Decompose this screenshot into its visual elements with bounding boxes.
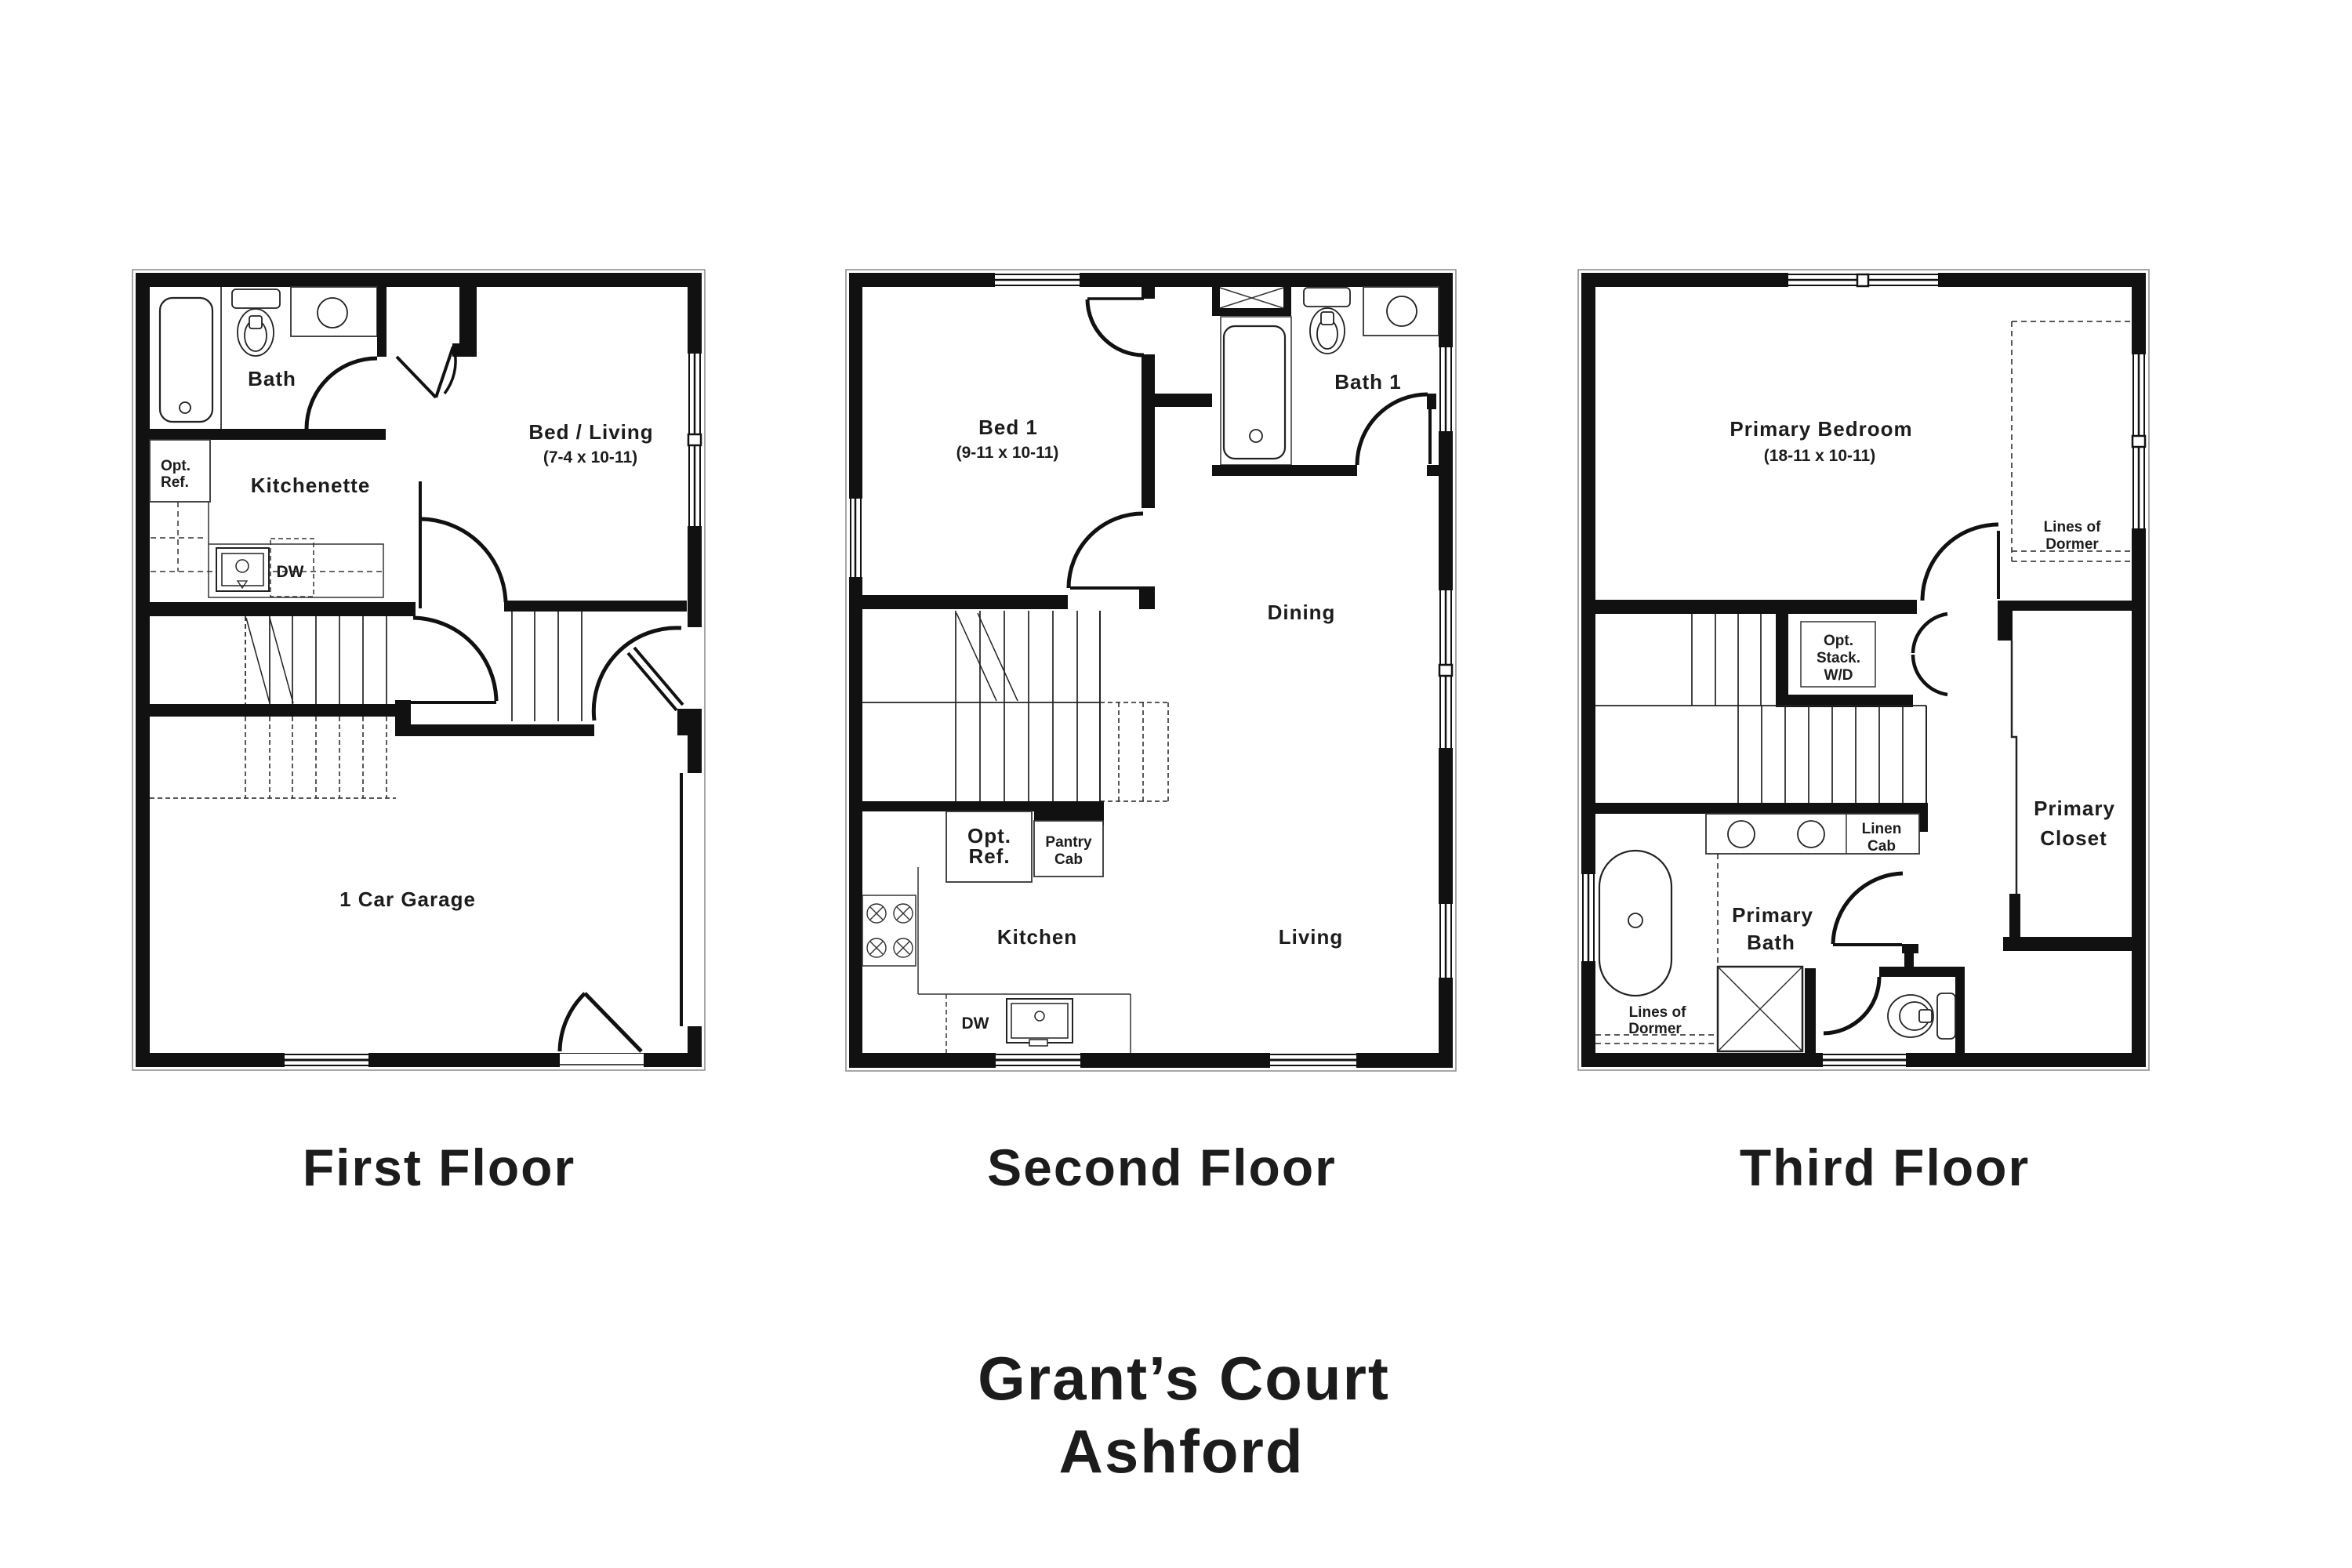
- svg-text:Ref.: Ref.: [161, 474, 189, 491]
- svg-text:W/D: W/D: [1824, 667, 1853, 684]
- svg-text:Primary: Primary: [2034, 797, 2115, 820]
- svg-text:Kitchenette: Kitchenette: [251, 474, 371, 497]
- svg-text:Stack.: Stack.: [1817, 650, 1860, 666]
- svg-text:Pantry: Pantry: [1045, 834, 1092, 851]
- svg-text:Bed 1: Bed 1: [978, 416, 1038, 439]
- svg-text:DW: DW: [277, 563, 304, 581]
- svg-text:Lines of: Lines of: [2044, 519, 2102, 535]
- svg-text:(18-11 x 10-11): (18-11 x 10-11): [1764, 447, 1875, 465]
- svg-text:Second Floor: Second Floor: [987, 1138, 1337, 1196]
- svg-text:Grant’s Court: Grant’s Court: [978, 1344, 1390, 1413]
- svg-text:Bath 1: Bath 1: [1334, 370, 1401, 394]
- svg-text:Cab: Cab: [1867, 838, 1896, 855]
- svg-text:Bath: Bath: [248, 367, 296, 390]
- svg-text:Closet: Closet: [2040, 826, 2107, 850]
- svg-text:Bed / Living: Bed / Living: [528, 420, 653, 444]
- svg-text:Primary: Primary: [1732, 903, 1813, 927]
- svg-text:DW: DW: [962, 1014, 989, 1033]
- svg-text:Dining: Dining: [1268, 601, 1336, 624]
- svg-text:Opt.: Opt.: [1824, 633, 1853, 649]
- svg-text:(7-4 x 10-11): (7-4 x 10-11): [543, 448, 637, 466]
- svg-text:Ref.: Ref.: [968, 844, 1010, 868]
- svg-text:Ashford: Ashford: [1059, 1417, 1305, 1486]
- svg-text:Opt.: Opt.: [161, 458, 191, 474]
- svg-text:Kitchen: Kitchen: [997, 925, 1077, 949]
- svg-text:Cab: Cab: [1054, 851, 1083, 868]
- svg-text:Dormer: Dormer: [2045, 536, 2099, 553]
- svg-text:Primary Bedroom: Primary Bedroom: [1730, 417, 1912, 441]
- svg-text:(9-11 x 10-11): (9-11 x 10-11): [956, 444, 1059, 462]
- svg-text:Third Floor: Third Floor: [1740, 1138, 2030, 1196]
- svg-text:Lines of: Lines of: [1629, 1004, 1687, 1021]
- svg-text:Living: Living: [1279, 925, 1344, 949]
- svg-text:Linen: Linen: [1862, 821, 1902, 837]
- svg-text:Bath: Bath: [1747, 931, 1795, 954]
- svg-text:First Floor: First Floor: [303, 1138, 575, 1196]
- svg-text:1 Car Garage: 1 Car Garage: [339, 887, 476, 911]
- svg-text:Dormer: Dormer: [1628, 1021, 1682, 1037]
